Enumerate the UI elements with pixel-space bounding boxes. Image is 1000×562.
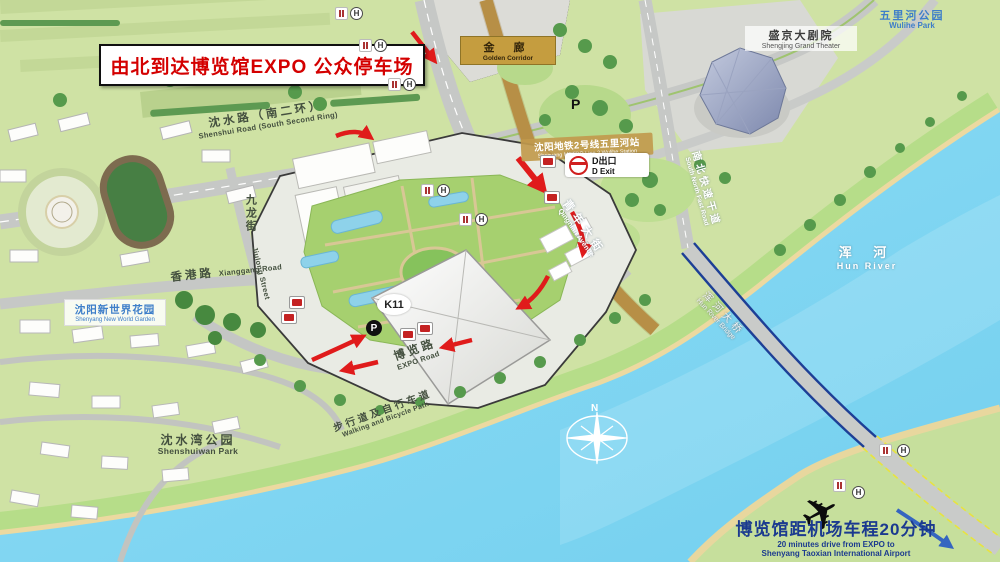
new-world-garden-label: 沈阳新世界花园 Shenyang New World Garden [64,299,166,326]
parking-icon-venue: P [366,320,382,336]
bus-stop-icon [540,155,556,168]
hotel-icon: H [897,444,910,457]
nwg-en: Shenyang New World Garden [65,317,165,323]
restaurant-icon [879,444,892,457]
ssw-en: Shenshuiwan Park [150,447,246,457]
wulihe-park-label: 五里河公园 Wulihe Park [876,10,948,31]
airport-note: 博览馆距机场车程20分钟 20 minutes drive from EXPO … [730,515,942,558]
bus-stop-icon [289,296,305,309]
parking-icon-north: P [571,96,580,112]
hotel-icon: H [350,7,363,20]
shenshuiwan-park-label: 沈水湾公园 Shenshuiwan Park [150,434,246,457]
d-exit-en: D Exit [592,167,617,176]
venue-entrance-icon [400,328,416,341]
hotel-icon: H [437,184,450,197]
restaurant-icon [421,184,434,197]
hotel-icon: H [475,213,488,226]
venue-entrance-icon [417,322,433,335]
golden-corridor-en: Golden Corridor [461,55,555,62]
bus-stop-icon [544,191,560,204]
restaurant-icon [459,213,472,226]
hotel-icon: H [374,39,387,52]
hotel-icon: H [403,78,416,91]
hun-river-label: 浑 河 Hun River [830,246,904,271]
shengjing-theater-label: 盛京大剧院 Shengjing Grand Theater [745,26,857,51]
hun-river-en: Hun River [830,261,904,271]
theater-zh: 盛京大剧院 [745,27,857,43]
restaurant-icon [833,479,846,492]
golden-corridor-zh: 金 廊 [461,39,555,55]
golden-corridor-label: 金 廊 Golden Corridor [460,36,556,65]
restaurant-icon [335,7,348,20]
theater-en: Shengjing Grand Theater [745,43,857,50]
wulihe-en: Wulihe Park [876,22,948,31]
bus-stop-icon [281,311,297,324]
d-exit-zh: D出口 [592,154,617,167]
jiulong-street-zh: 九龙街 [244,194,256,233]
expo-access-map: ✈ 由北到达博览馆EXPO 公众停车场 金 廊 Golden Corridor … [0,0,1000,562]
airport-zh: 博览馆距机场车程20分钟 [730,515,942,540]
ssw-zh: 沈水湾公园 [150,434,246,447]
nwg-zh: 沈阳新世界花园 [65,302,165,317]
hotel-icon: H [852,486,865,499]
metro-logo-icon [569,156,588,175]
restaurant-icon [359,39,372,52]
restaurant-icon [388,78,401,91]
airport-en1: 20 minutes drive from EXPO to [730,540,942,549]
hun-river-zh: 浑 河 [830,246,904,261]
k11-badge: K11 [377,294,411,315]
compass-north-letter: N [591,403,598,414]
airport-en2: Shenyang Taoxian International Airport [730,549,942,558]
d-exit-sign: D出口 D Exit [565,153,649,177]
